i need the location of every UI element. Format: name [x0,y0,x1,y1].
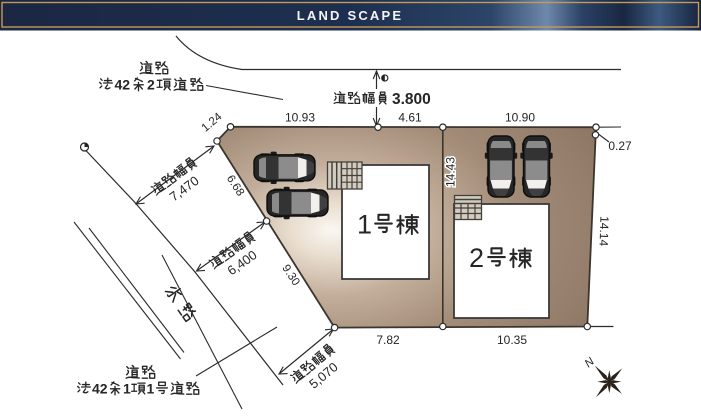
svg-text:LAND SCAPE: LAND SCAPE [297,8,404,23]
svg-text:1.24: 1.24 [200,111,225,135]
svg-text:42: 42 [115,77,131,93]
svg-text:42: 42 [92,381,108,397]
svg-text:1: 1 [123,381,131,397]
svg-text:10.35: 10.35 [497,333,527,347]
svg-text:5,070: 5,070 [306,359,341,391]
svg-text:2: 2 [147,77,155,93]
svg-text:3.800: 3.800 [392,91,431,108]
svg-text:0.27: 0.27 [608,139,632,153]
svg-text:10.90: 10.90 [505,111,535,125]
svg-text:1: 1 [357,210,372,240]
svg-text:14.43: 14.43 [444,157,458,187]
svg-text:4.61: 4.61 [398,111,422,125]
svg-text:10.93: 10.93 [285,111,315,125]
svg-text:1: 1 [147,381,155,397]
svg-text:14.14: 14.14 [596,216,611,247]
svg-text:2: 2 [469,243,484,273]
svg-text:6,400: 6,400 [224,247,259,278]
svg-text:N: N [583,355,598,370]
svg-text:7.82: 7.82 [376,333,400,347]
